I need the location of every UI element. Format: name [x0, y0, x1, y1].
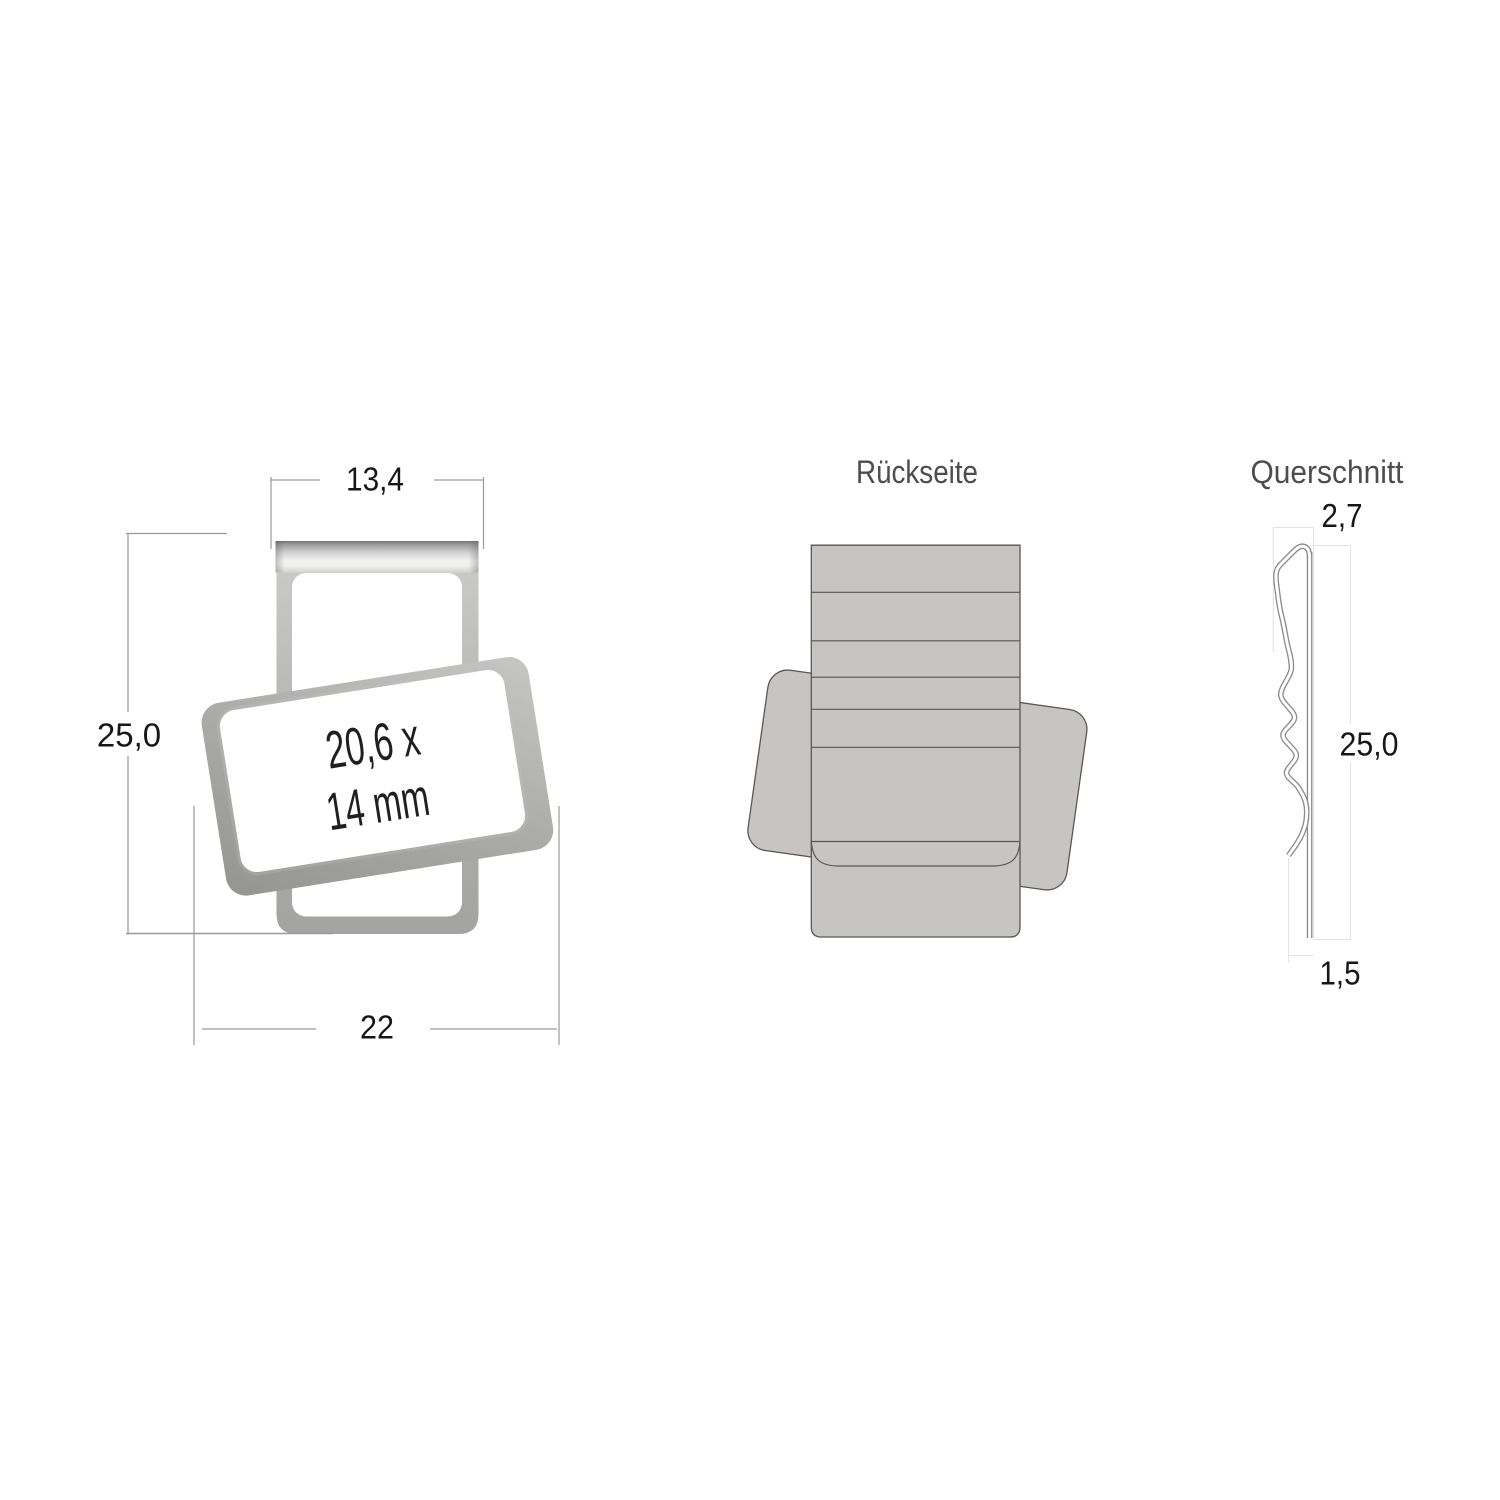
svg-text:22: 22	[360, 1009, 394, 1046]
svg-text:25,0: 25,0	[1340, 726, 1399, 763]
svg-text:Rückseite: Rückseite	[856, 454, 978, 490]
svg-text:13,4: 13,4	[346, 461, 404, 498]
svg-text:25,0: 25,0	[97, 717, 161, 754]
svg-text:1,5: 1,5	[1320, 955, 1361, 992]
svg-text:2,7: 2,7	[1322, 497, 1363, 534]
svg-text:Querschnitt: Querschnitt	[1251, 454, 1404, 490]
